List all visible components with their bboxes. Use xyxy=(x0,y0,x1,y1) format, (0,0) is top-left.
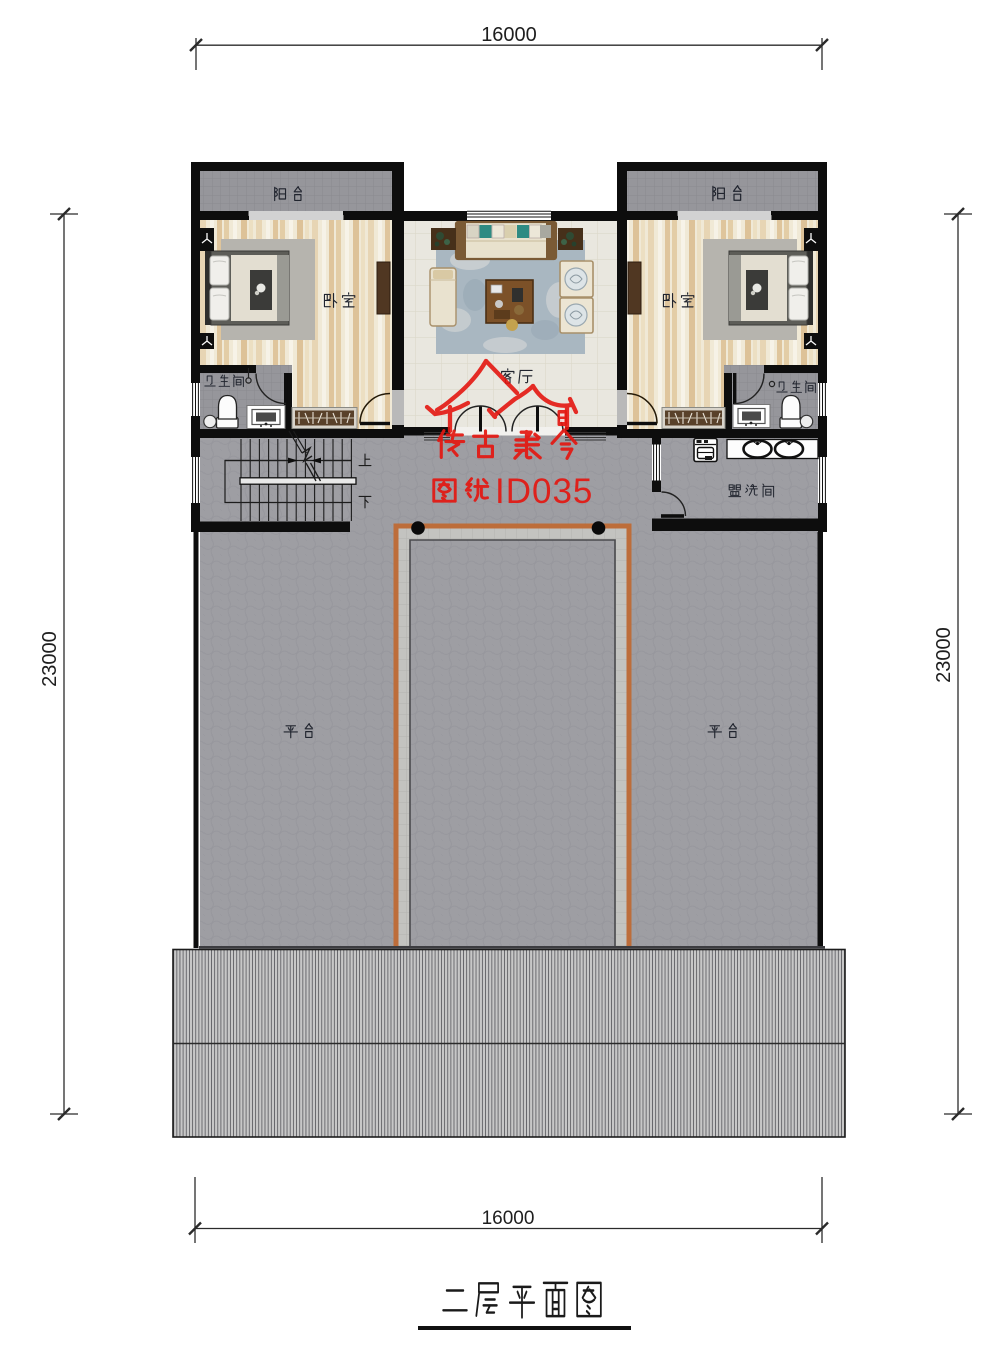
svg-text:23000: 23000 xyxy=(39,631,61,687)
svg-text:23000: 23000 xyxy=(933,627,955,683)
svg-text:16000: 16000 xyxy=(481,24,537,46)
svg-text:ID035: ID035 xyxy=(495,472,593,511)
svg-text:16000: 16000 xyxy=(482,1208,535,1229)
